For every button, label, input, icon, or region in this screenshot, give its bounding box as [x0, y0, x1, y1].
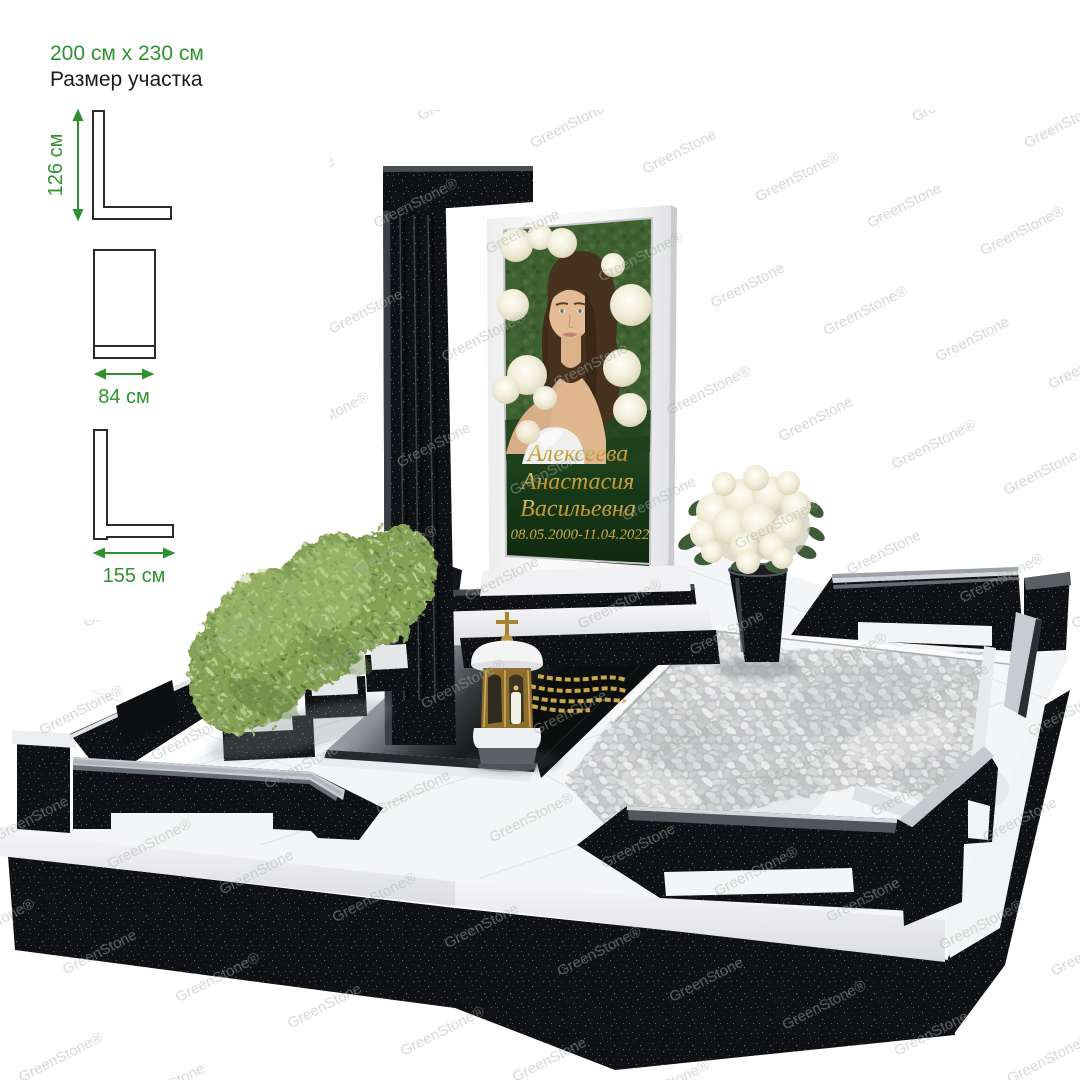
svg-text:Размер участка: Размер участка	[50, 68, 203, 91]
svg-text:200 см x 230 см: 200 см x 230 см	[50, 42, 204, 65]
svg-text:155 см: 155 см	[103, 565, 166, 587]
svg-text:126 см: 126 см	[45, 134, 67, 197]
svg-text:84 см: 84 см	[98, 386, 150, 408]
